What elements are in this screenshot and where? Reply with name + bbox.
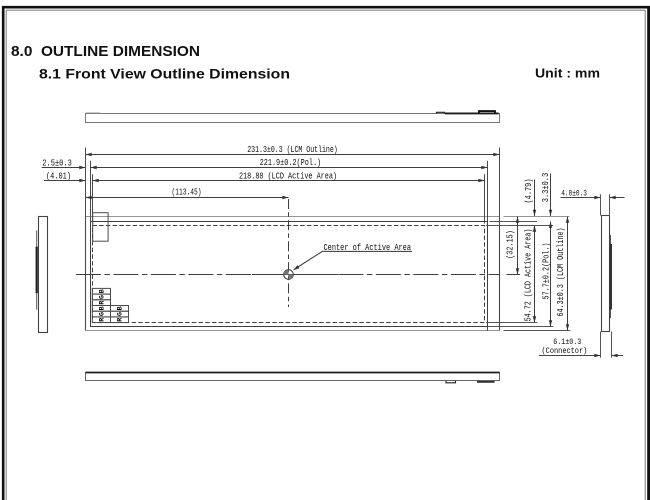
svg-text:(4.79): (4.79) — [524, 179, 534, 204]
svg-text:B: B — [99, 289, 106, 293]
svg-text:G: G — [117, 312, 124, 316]
svg-text:57.7±0.2(Pol.): 57.7±0.2(Pol.) — [542, 243, 552, 300]
svg-text:8.0 OUTLINE DIMENSION: 8.0 OUTLINE DIMENSION — [11, 43, 200, 60]
svg-text:64.3±0.3 (LCM Outline): 64.3±0.3 (LCM Outline) — [556, 228, 566, 317]
svg-text:231.3±0.3 (LCM Outline): 231.3±0.3 (LCM Outline) — [247, 145, 338, 155]
svg-text:R: R — [99, 301, 106, 305]
svg-text:54.72 (LCD Active Area): 54.72 (LCD Active Area) — [524, 229, 534, 322]
svg-text:B: B — [99, 306, 106, 310]
svg-text:3.3±0.3: 3.3±0.3 — [541, 173, 551, 203]
svg-text:8.1 Front View Outline Dimensi: 8.1 Front View Outline Dimension — [39, 66, 290, 82]
svg-text:221.9±0.2(Pol.): 221.9±0.2(Pol.) — [260, 158, 322, 168]
svg-text:(32.15): (32.15) — [506, 230, 516, 259]
svg-text:B: B — [117, 306, 124, 310]
svg-text:(113.45): (113.45) — [172, 188, 202, 198]
svg-text:R: R — [99, 318, 106, 322]
svg-text:G: G — [99, 295, 106, 299]
svg-text:4.8±0.3: 4.8±0.3 — [561, 188, 587, 198]
svg-text:(Connector): (Connector) — [542, 346, 588, 356]
svg-text:218.88 (LCD Active Area): 218.88 (LCD Active Area) — [239, 172, 337, 182]
svg-text:R: R — [117, 318, 124, 322]
svg-text:Unit : mm: Unit : mm — [535, 66, 600, 81]
svg-text:G: G — [99, 312, 106, 316]
